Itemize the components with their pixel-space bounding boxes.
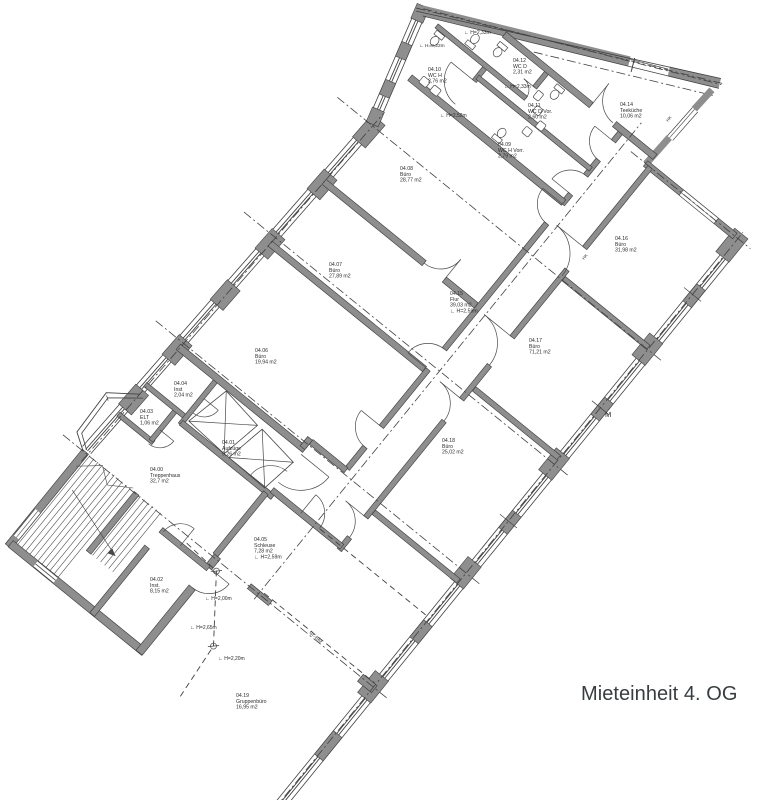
svg-text:∟ H=2,52m: ∟ H=2,52m: [440, 113, 467, 119]
svg-text:Mieteinheit 4. OG: Mieteinheit 4. OG: [581, 683, 737, 705]
svg-text:∟ H=2,20m: ∟ H=2,20m: [218, 656, 245, 662]
svg-text:M: M: [605, 410, 611, 419]
svg-text:∟ H=2,65m: ∟ H=2,65m: [190, 625, 217, 631]
svg-text:∟ H=2,00m: ∟ H=2,00m: [205, 596, 232, 602]
svg-text:∟ H=2,33m: ∟ H=2,33m: [504, 84, 531, 90]
svg-text:∟ H=2,33m: ∟ H=2,33m: [464, 30, 491, 36]
svg-text:∟ H=0,22m: ∟ H=0,22m: [419, 43, 445, 49]
